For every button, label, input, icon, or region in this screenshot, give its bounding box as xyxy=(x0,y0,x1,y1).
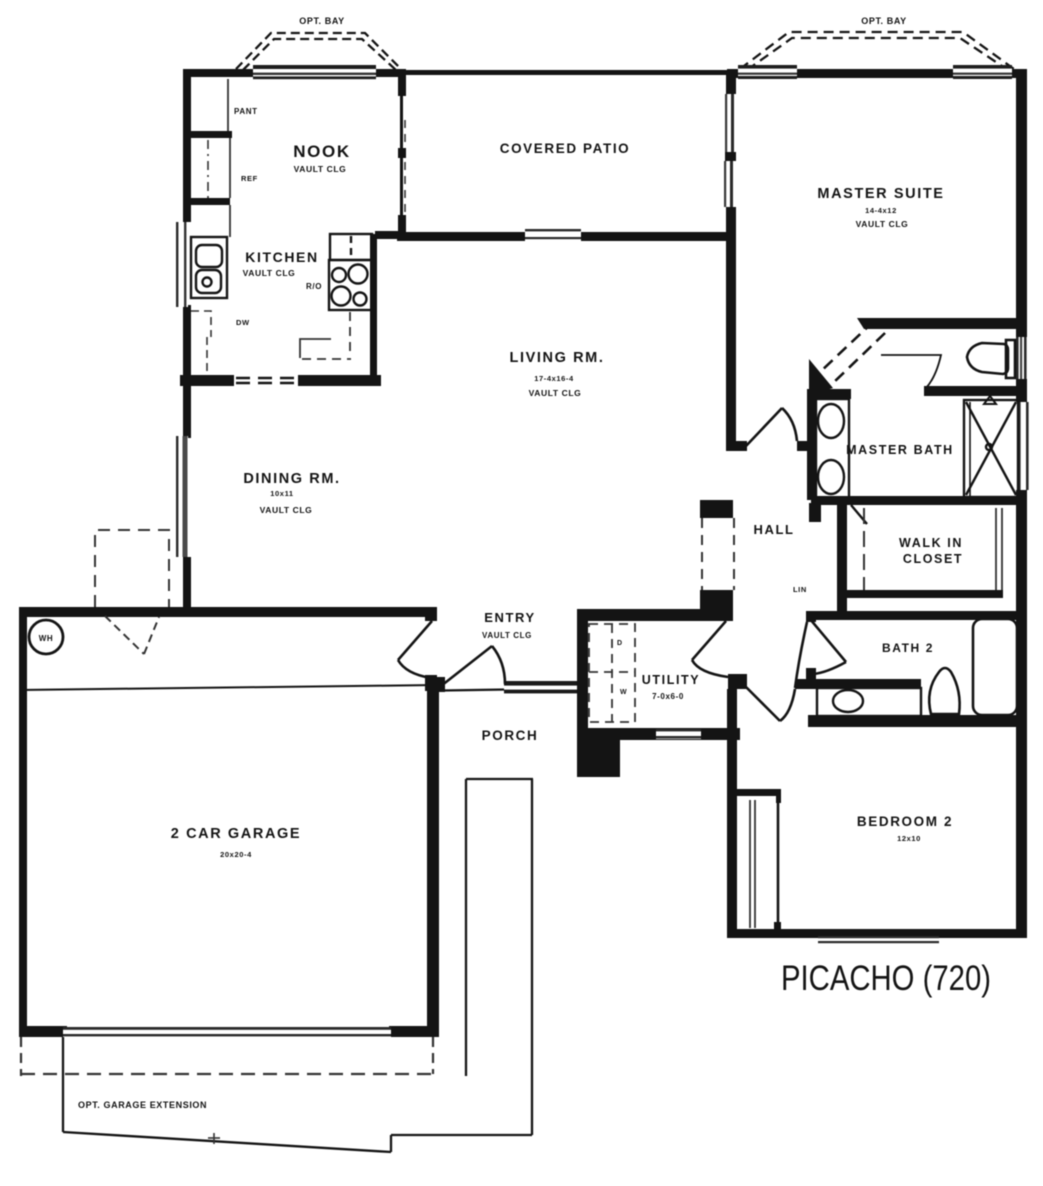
svg-text:VAULT CLG: VAULT CLG xyxy=(294,164,347,174)
svg-text:DINING RM.: DINING RM. xyxy=(243,471,340,487)
svg-text:D: D xyxy=(617,640,623,647)
svg-text:VAULT CLG: VAULT CLG xyxy=(260,505,313,515)
svg-text:20x20-4: 20x20-4 xyxy=(220,850,252,859)
svg-text:12x10: 12x10 xyxy=(897,834,921,843)
svg-text:14-4x12: 14-4x12 xyxy=(865,206,897,215)
svg-text:BATH 2: BATH 2 xyxy=(882,641,934,655)
svg-text:R/O: R/O xyxy=(306,282,322,291)
svg-text:OPT. BAY: OPT. BAY xyxy=(861,16,906,26)
svg-text:W: W xyxy=(620,689,627,696)
svg-text:VAULT CLG: VAULT CLG xyxy=(856,219,909,229)
svg-text:VAULT CLG: VAULT CLG xyxy=(482,631,532,640)
svg-text:OPT. GARAGE EXTENSION: OPT. GARAGE EXTENSION xyxy=(78,1100,207,1110)
svg-text:OPT. BAY: OPT. BAY xyxy=(299,16,344,26)
svg-text:PICACHO (720): PICACHO (720) xyxy=(781,959,991,998)
svg-text:KITCHEN: KITCHEN xyxy=(245,249,318,265)
svg-text:COVERED PATIO: COVERED PATIO xyxy=(500,141,631,156)
svg-text:UTILITY: UTILITY xyxy=(642,673,700,687)
svg-text:MASTER BATH: MASTER BATH xyxy=(846,443,954,457)
svg-text:REF: REF xyxy=(241,174,258,183)
svg-text:10x11: 10x11 xyxy=(270,489,293,498)
svg-text:17-4x16-4: 17-4x16-4 xyxy=(534,374,574,383)
svg-text:LIVING RM.: LIVING RM. xyxy=(510,350,605,366)
svg-text:VAULT CLG: VAULT CLG xyxy=(243,268,296,278)
svg-text:DW: DW xyxy=(236,318,250,327)
svg-text:BEDROOM 2: BEDROOM 2 xyxy=(857,814,953,829)
svg-text:PANT: PANT xyxy=(234,107,258,116)
svg-text:WALK IN: WALK IN xyxy=(899,536,963,550)
svg-text:ENTRY: ENTRY xyxy=(484,610,536,625)
svg-text:CLOSET: CLOSET xyxy=(903,552,963,566)
svg-text:WH: WH xyxy=(39,634,54,643)
svg-text:LIN: LIN xyxy=(793,585,807,594)
svg-text:2 CAR GARAGE: 2 CAR GARAGE xyxy=(171,826,301,842)
svg-text:7-0x6-0: 7-0x6-0 xyxy=(652,692,684,701)
svg-text:MASTER SUITE: MASTER SUITE xyxy=(817,186,944,202)
svg-text:VAULT CLG: VAULT CLG xyxy=(529,388,582,398)
svg-text:PORCH: PORCH xyxy=(482,728,539,743)
svg-text:HALL: HALL xyxy=(753,522,794,537)
svg-text:NOOK: NOOK xyxy=(293,142,350,161)
